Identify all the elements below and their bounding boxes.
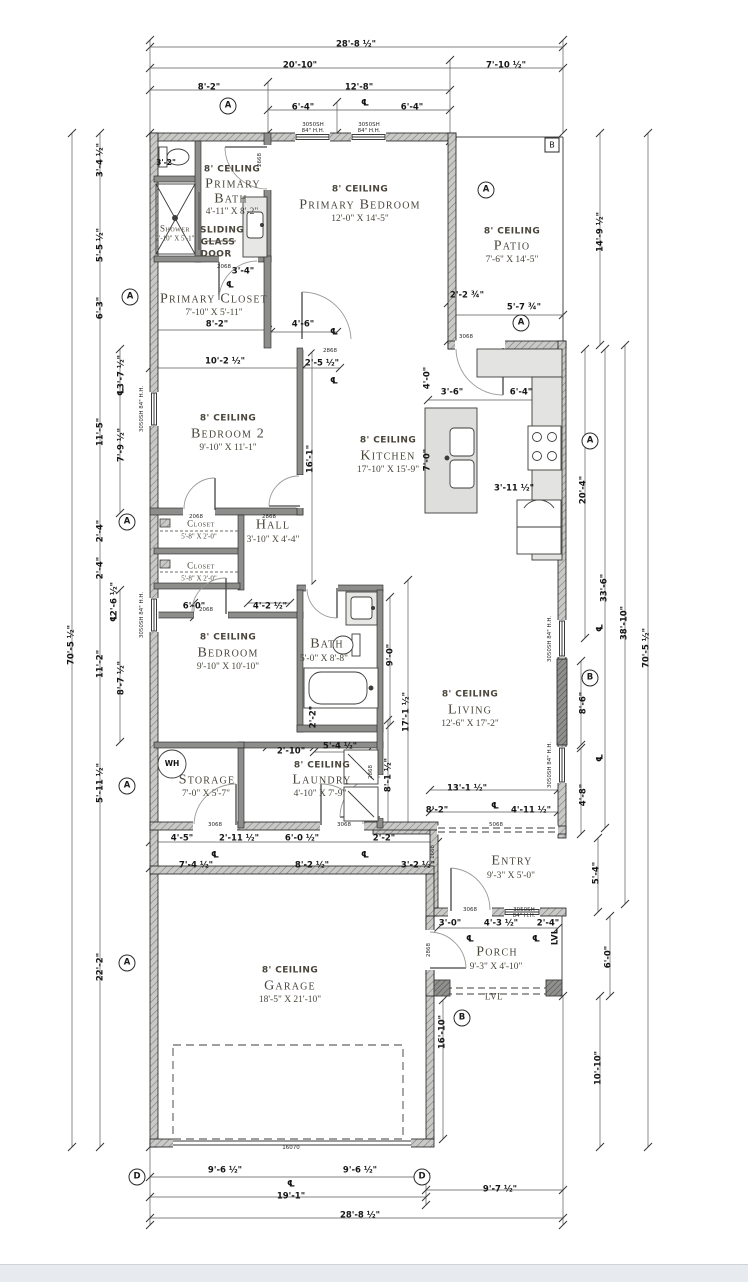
window-tag: 3050SH 84" H.H. (548, 742, 554, 788)
room-primary-bedroom-ceiling: 8' CEILING (332, 185, 388, 194)
room-closet1-size: 5'-8" X 2'-0" (181, 533, 216, 540)
dim-bedroom2-width: 10'-2 ½" (205, 358, 245, 367)
kitchen-counter (477, 349, 562, 377)
section-marker-a: A (122, 289, 139, 306)
room-kitchen-size: 17'-10" X 15'-9" (357, 466, 419, 476)
dim-right: 8'-6" (580, 692, 589, 714)
room-storage-size: 7'-0" X 5'-7" (182, 790, 230, 800)
room-kitchen-name: Kitchen (360, 450, 415, 465)
dim-laundry-d: 2'-2" (373, 835, 395, 844)
room-bedroom-size: 9'-10" X 10'-10" (197, 663, 259, 673)
dim-kitchen-depth: 16'-1" (307, 445, 316, 473)
room-shower-name: Shower (160, 224, 190, 233)
dim-garage-a: 9'-6 ½" (208, 1167, 242, 1176)
dim-overall-height-left: 70'-5 ½" (68, 625, 77, 665)
window-tag: 84" H.H. (513, 914, 536, 920)
room-primary-bedroom-name: Primary Bedroom (299, 199, 420, 214)
dim-row2-a: 7'-4 ½" (179, 862, 213, 871)
room-bath-name: Bath (310, 638, 344, 653)
dim-left: 5'-5 ½" (97, 228, 106, 262)
room-primary-bath-size: 4'-11" X 8'-2" (206, 208, 259, 218)
door-tag: 3068 (463, 908, 477, 914)
dim-left: 6'-3" (97, 297, 106, 319)
lvl-beam-right-wall (557, 659, 567, 745)
dim-right: 4'-8" (580, 784, 589, 806)
room-bedroom-ceiling: 8' CEILING (200, 633, 256, 642)
centerline-symbol: ℄ (287, 1180, 295, 1189)
centerline-symbol: ℄ (466, 935, 474, 944)
dim-left: 7'-9 ½" (118, 428, 127, 462)
room-garage-ceiling: 8' CEILING (262, 966, 318, 975)
dim-living-opening: 13'-1 ½" (447, 785, 487, 794)
room-living-ceiling: 8' CEILING (442, 690, 498, 699)
dim-storage-a: 4'-5" (171, 835, 193, 844)
dim-left: 2'-4" (97, 557, 106, 579)
window-tag: 3050SH 84" H.H. (548, 616, 554, 662)
dim-porch-width: 9'-7 ½" (483, 1186, 517, 1195)
room-closet2-size: 5'-8" X 2'-0" (181, 575, 216, 582)
room-entry-size: 9'-3" X 5'-0" (487, 872, 535, 882)
dim-7-10-half: 7'-10 ½" (486, 62, 526, 71)
section-marker-b: B (582, 670, 599, 687)
room-porch-size: 9'-3" X 4'-10" (470, 963, 523, 973)
dim-right: 10'-10" (595, 1051, 604, 1085)
dim-porch-a: 3'-0" (439, 920, 461, 929)
room-closet2-name: Closet (187, 561, 215, 570)
lvl-beam-label-side: LVL (552, 929, 561, 945)
dim-6-4-b: 6'-4" (401, 104, 423, 113)
dim-left: 22'-2" (97, 953, 106, 981)
dim-left: 3'-4 ½" (97, 143, 106, 177)
dim-kitchen-c: 6'-4" (510, 389, 532, 398)
section-marker-a: A (119, 514, 136, 531)
dim-right: 33'-6" (601, 574, 610, 602)
dim-garage-depth: 16'-10" (439, 1015, 448, 1049)
dim-right: 5'-4" (593, 862, 602, 884)
sink-icon (351, 597, 372, 619)
room-primary-bedroom-size: 12'-0" X 14'-5" (331, 215, 389, 225)
room-patio-size: 7'-6" X 14'-5" (486, 256, 539, 266)
room-laundry-ceiling: 8' CEILING (294, 761, 350, 770)
dim-right: 38'-10" (621, 606, 630, 640)
room-bath-size: 5'-0" X 8'-8" (300, 655, 348, 665)
section-marker-b: B (454, 1010, 471, 1027)
centerline-symbol: ℄ (330, 328, 338, 337)
detail-marker-b: B (545, 138, 560, 153)
section-marker-d: D (414, 1169, 431, 1186)
door-tag: 3068 (459, 335, 473, 341)
dim-storage-b: 2'-11 ½" (219, 835, 259, 844)
dim-right: 20'-4" (580, 476, 589, 504)
centerline-symbol: ℄ (226, 281, 234, 290)
section-marker-d: D (129, 1169, 146, 1186)
dim-garage-width: 19'-1" (277, 1193, 305, 1202)
room-primary-closet-size: 7'-10" X 5'-11" (185, 309, 242, 319)
room-storage-name: Storage (179, 774, 236, 789)
dim-porch-b: 4'-3 ½" (484, 920, 518, 929)
dim-kitchen-d: 3'-11 ½" (494, 485, 534, 494)
centerline-symbol: ℄ (110, 614, 119, 622)
floor-plan-sheet: 28'-8 ½"20'-10"7'-10 ½"8'-2"12'-8"6'-4"6… (0, 0, 748, 1282)
dim-overall-height-right: 70'-5 ½" (643, 628, 652, 668)
centerline-symbol: ℄ (532, 935, 540, 944)
window-tag: 84" H.H. (302, 129, 325, 135)
dim-island: 7'-0" (424, 449, 433, 471)
dim-left: 11'-5" (97, 418, 106, 446)
dim-right: 14'-9 ½" (597, 212, 606, 252)
dim-bath-depth: 9'-0" (387, 644, 396, 666)
dim-left: 5'-11 ½" (97, 763, 106, 803)
dim-left: 2'-4" (97, 520, 106, 542)
door-tag: 2668 (258, 153, 264, 167)
dim-laundry-a: 2'-10" (277, 748, 305, 757)
door-tag: 2068 (199, 608, 213, 614)
centerline-symbol: ℄ (361, 851, 369, 860)
dim-overall-width-bottom: 28'-8 ½" (340, 1212, 380, 1221)
room-hall-size: 3'-10" X 4'-4" (247, 536, 300, 546)
dim-living-b: 4'-11 ½" (511, 807, 551, 816)
section-marker-a: A (119, 778, 136, 795)
dim-living-a: 8'-2" (426, 807, 448, 816)
room-garage-size: 18'-5" X 21'-10" (259, 996, 321, 1006)
room-bedroom-name: Bedroom (197, 647, 258, 662)
dim-living-depth: 17'-1 ½" (403, 692, 412, 732)
door-tag: 2068 (189, 515, 203, 521)
dim-overall-width: 28'-8 ½" (336, 41, 376, 50)
dim-hall-pass: 4'-6" (292, 321, 314, 330)
bathtub-icon (304, 668, 378, 708)
room-laundry-name: Laundry (292, 774, 351, 789)
dim-row2-b: 8'-2 ½" (295, 862, 329, 871)
room-primary-bath-name: Bath (214, 193, 248, 208)
dim-closet-door: 3'-4" (232, 268, 254, 277)
room-bedroom2-name: Bedroom 2 (191, 428, 265, 443)
room-bedroom2-size: 9'-10" X 11'-1" (199, 444, 256, 454)
dim-closet-width: 8'-2" (206, 321, 228, 330)
room-garage-name: Garage (264, 980, 316, 995)
dim-12-8: 12'-8" (345, 84, 373, 93)
sheet-bottom-band (0, 1264, 748, 1282)
dim-kitchen-b: 3'-6" (441, 389, 463, 398)
water-heater-label: WH (165, 760, 180, 768)
dim-bedroom-b: 4'-2 ½" (253, 603, 287, 612)
note-sliding-glass-door: GLASS (201, 238, 236, 247)
room-primary-closet-name: Primary Closet (160, 293, 268, 308)
dim-porch-c: 2'-4" (537, 920, 559, 929)
dim-row2-c: 3'-2 ½" (401, 862, 435, 871)
door-tag: 2868 (323, 349, 337, 355)
shower-icon (156, 184, 195, 254)
door-tag: 2068 (217, 265, 231, 271)
dim-laundry-b: 5'-4 ½" (323, 743, 357, 752)
room-entry-name: Entry (491, 855, 532, 870)
window-tag: 3050SH 84" H.H. (140, 592, 146, 638)
section-marker-a: A (119, 955, 136, 972)
section-marker-a: A (478, 182, 495, 199)
centerline-symbol: ℄ (117, 388, 126, 396)
room-bedroom2-ceiling: 8' CEILING (200, 414, 256, 423)
header-tag: 5068 (489, 823, 503, 829)
dim-left: 11'-2" (97, 650, 106, 678)
door-tag: 2868 (369, 765, 375, 779)
lvl-beam-label: LVL (485, 992, 503, 1001)
dim-left: 2'-6 ½" (111, 582, 120, 616)
garage-door-track (173, 1045, 403, 1139)
room-primary-bath-name: Primary (205, 178, 261, 193)
door-tag: 3068 (208, 823, 222, 829)
room-living-size: 12'-6" X 17'-2" (441, 720, 499, 730)
dim-bath-nook: 2'-2" (310, 706, 319, 728)
door-tag: 2868 (427, 943, 433, 957)
window-tag: 3050SH 84" H.H. (140, 386, 146, 432)
centerline-symbol: ℄ (211, 851, 219, 860)
door-tag: 3068 (337, 823, 351, 829)
floor-plan-drawing-area: 28'-8 ½"20'-10"7'-10 ½"8'-2"12'-8"6'-4"6… (0, 0, 748, 1282)
room-shower-size: 2'-10" X 5'-1" (156, 235, 195, 242)
door-tag: 2868 (262, 515, 276, 521)
fridge-icon (517, 500, 561, 554)
room-porch-name: Porch (476, 946, 518, 961)
section-marker-a: A (220, 98, 237, 115)
centerline-symbol: ℄ (596, 754, 605, 762)
dim-pass: 2'-5 ½" (305, 360, 339, 369)
dim-garage-b: 9'-6 ½" (343, 1167, 377, 1176)
room-primary-bath-ceiling: 8' CEILING (204, 165, 260, 174)
dim-laundry-side: 8'-1 ½" (385, 758, 394, 792)
section-marker-a: A (582, 433, 599, 450)
dim-patio-b: 5'-7 ¾" (507, 304, 541, 313)
centerline-symbol: ℄ (361, 99, 369, 108)
room-living-name: Living (448, 704, 492, 719)
section-marker-a: A (513, 315, 530, 332)
dim-toilet-nook: 3'-2" (156, 159, 176, 167)
room-patio-ceiling: 8' CEILING (484, 227, 540, 236)
room-patio-name: Patio (494, 240, 531, 255)
note-sliding-glass-door: DOOR (200, 250, 231, 259)
room-kitchen-ceiling: 8' CEILING (360, 436, 416, 445)
garage-door-tag: 16070 (282, 1146, 300, 1152)
note-sliding-glass-door: SLIDING (200, 226, 244, 235)
dim-6-4-a: 6'-4" (292, 104, 314, 113)
dim-left: 8'-7 ½" (118, 661, 127, 695)
window-tag: 84" H.H. (358, 129, 381, 135)
dim-kitchen-a: 4'-0" (424, 367, 433, 389)
range-icon (528, 426, 561, 470)
dim-laundry-c: 6'-0 ½" (285, 835, 319, 844)
dim-20-10: 20'-10" (283, 62, 317, 71)
room-laundry-size: 4'-10" X 7'-9" (294, 790, 347, 800)
centerline-symbol: ℄ (596, 624, 605, 632)
dim-8-2: 8'-2" (198, 84, 220, 93)
dim-right: 6'-0" (605, 946, 614, 968)
door-tag: 1668 (431, 845, 437, 859)
centerline-symbol: ℄ (491, 802, 499, 811)
centerline-symbol: ℄ (330, 377, 338, 386)
dim-patio-a: 2'-2 ¾" (450, 292, 484, 301)
dim-left: 3'-7 ½" (118, 355, 127, 389)
